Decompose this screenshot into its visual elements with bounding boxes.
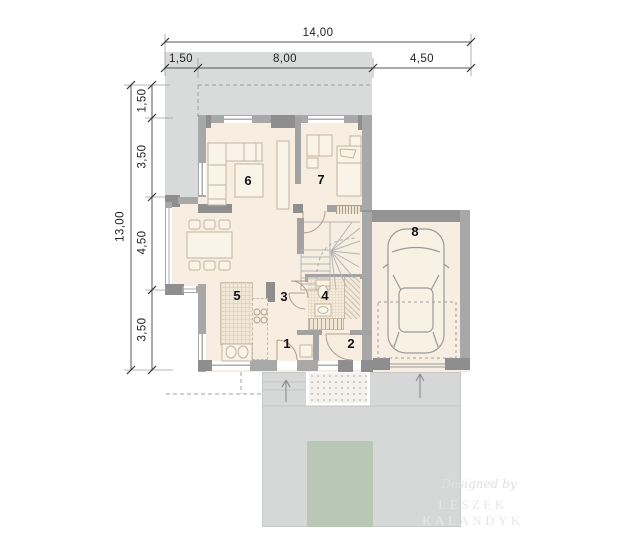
room-label-6: 6	[236, 174, 260, 188]
stove-burners	[254, 309, 267, 323]
dim-left-seg-3: 4,50	[137, 221, 150, 265]
floor-plan: 14,00 1,50 8,00 4,50 13,00 1,50 3,50 4,5…	[0, 0, 638, 556]
chair	[204, 220, 215, 229]
chair	[219, 261, 230, 270]
dim-left-seg-2: 3,50	[137, 135, 150, 179]
dim-top-seg-2: 8,00	[263, 53, 307, 66]
driveway-lines	[262, 382, 461, 406]
room-label-3: 3	[272, 290, 296, 304]
watermark-name: LESZEK KALANDYK	[397, 497, 549, 529]
plan-overlay	[0, 0, 638, 556]
dim-total-width: 14,00	[296, 27, 340, 40]
room-label-2: 2	[339, 337, 363, 351]
room-label-8: 8	[403, 225, 427, 239]
chair	[204, 261, 215, 270]
sink-basin	[226, 346, 236, 358]
watermark-script: Designed by	[434, 477, 524, 491]
dim-total-height: 13,00	[115, 205, 128, 249]
dim-left-seg-1: 1,50	[137, 79, 150, 123]
chair	[189, 261, 200, 270]
entry-arrows	[282, 374, 424, 402]
chair	[189, 220, 200, 229]
car	[383, 229, 449, 353]
sink-basin	[238, 346, 248, 358]
dim-top-seg-3: 4,50	[400, 53, 444, 66]
room-label-7: 7	[309, 173, 333, 187]
room-label-5: 5	[225, 289, 249, 303]
garage-door	[390, 364, 445, 367]
pillow	[340, 149, 356, 158]
dim-left-seg-4: 3,50	[137, 308, 150, 352]
room-label-1: 1	[275, 337, 299, 351]
room-label-4: 4	[313, 289, 337, 303]
hall-cabinet	[300, 345, 312, 357]
dining-table	[187, 232, 232, 258]
nightstand	[350, 136, 361, 147]
shelf-room7	[307, 158, 318, 168]
dim-top-seg-1: 1,50	[159, 53, 203, 66]
tv-sideboard	[277, 141, 289, 209]
chair	[219, 220, 230, 229]
